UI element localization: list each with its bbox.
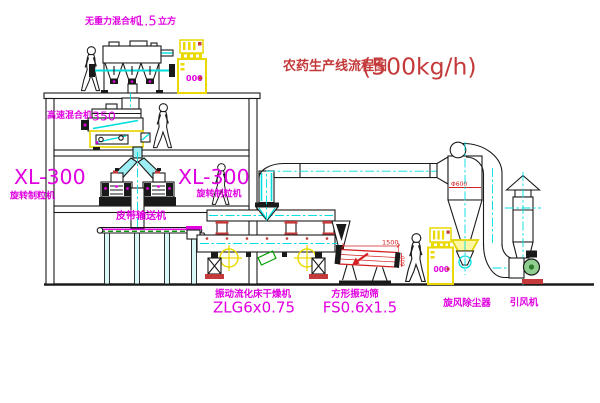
- gravity-free-mixer: [89, 41, 175, 93]
- diagram-canvas: 000: [0, 0, 600, 403]
- label-gravity-mixer: 无重力混合机: [84, 15, 139, 27]
- label-cyclone: 旋风除尘器: [442, 297, 491, 309]
- label-fan: 引风机: [510, 297, 539, 309]
- label-granulator-right-name: 旋转制粒机: [196, 188, 242, 200]
- label-dryer-model: ZLG6x0.75: [213, 299, 295, 317]
- label-granulator-left-name: 旋转制粒机: [9, 190, 55, 202]
- granulator-left: [99, 168, 134, 206]
- belt-conveyor: [97, 228, 202, 285]
- fluid-bed-dryer: [197, 203, 350, 280]
- screen-width-dim: 600: [401, 256, 407, 267]
- person-near-screen: [406, 234, 426, 282]
- label-granulator-right-model: XL-300: [178, 165, 250, 189]
- person-second-floor: [153, 104, 171, 148]
- control-cabinet-bottom: 000: [428, 228, 453, 284]
- induced-draft-fan: [509, 251, 543, 285]
- label-granulator-left-model: XL-300: [14, 165, 86, 189]
- label-gravity-mixer-size: 1.5: [136, 15, 157, 30]
- label-screen-model: FS0.6x1.5: [323, 299, 397, 317]
- label-belt-conveyor: 皮带输送机: [115, 209, 166, 222]
- label-high-speed-mixer-size: 350: [92, 109, 116, 124]
- screen-length-dim: 1500: [382, 239, 399, 247]
- title-capacity: (500kg/h): [362, 53, 477, 81]
- label-gravity-mixer-unit: 立方: [158, 15, 176, 27]
- label-high-speed-mixer: 高速混合机: [47, 109, 92, 121]
- vibrating-screen: 1500 600: [335, 239, 407, 285]
- diagram-title: 农药生产线流程图 (500kg/h): [282, 53, 477, 81]
- granulator-right: [141, 168, 176, 206]
- process-flow-drawing: 000: [0, 0, 600, 403]
- control-cabinet-top: 000: [178, 40, 206, 93]
